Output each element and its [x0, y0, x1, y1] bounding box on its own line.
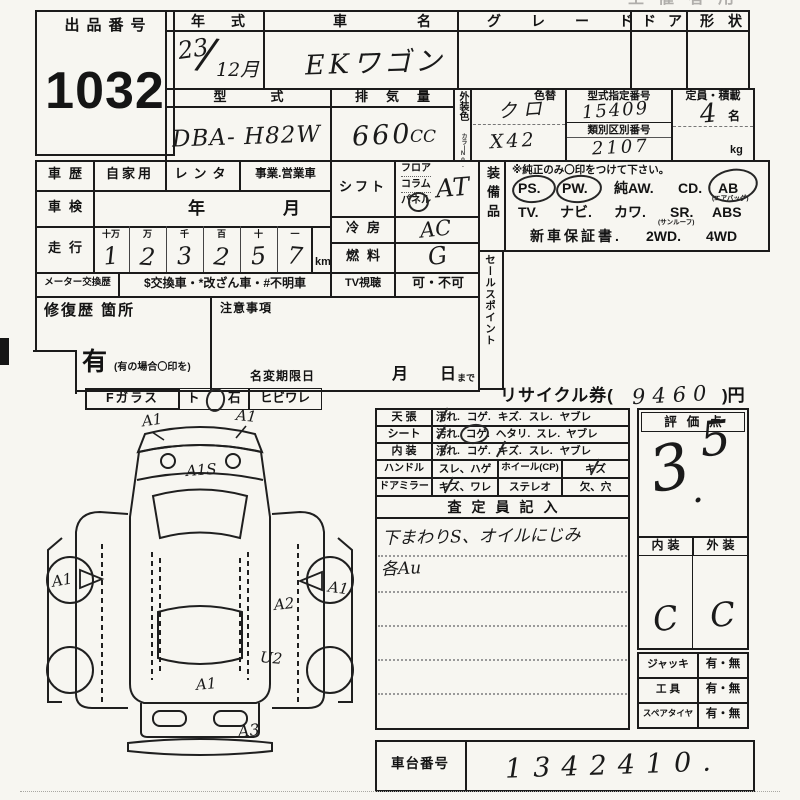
equipment-kawa: カワ.	[614, 204, 646, 220]
notes-rule-line	[378, 555, 627, 557]
equipment-abs: ABS	[712, 204, 742, 220]
sales-point-label: セールスポイント	[481, 254, 499, 346]
class-number-value: 2107	[591, 137, 650, 161]
rename-deadline-label: 名変期限日	[250, 370, 315, 384]
mileage-digit-5: 5	[239, 242, 278, 272]
mileage-digit-6: 7	[276, 241, 314, 272]
car-damage-diagram: A1 A1 A1S A1 A1 A2 U2 A1 A3	[40, 412, 360, 762]
equipment-warranty: 新車保証書.	[530, 228, 622, 244]
damage-mark: A1	[235, 407, 257, 426]
class-number-label: 類別区別番号	[567, 122, 671, 138]
history-label: 車歴	[35, 167, 95, 182]
spare-label: スペアタイヤ	[637, 709, 699, 719]
jack-label: ジャッキ	[637, 658, 699, 670]
mileage-col-1k: 千	[166, 229, 203, 239]
tool-label: 工 具	[637, 683, 699, 695]
fglass-opt-ishi: 石	[228, 391, 241, 405]
payload-unit: kg	[730, 144, 743, 157]
condition-item: ヤブレ	[560, 445, 592, 457]
condition-item: スレ.	[536, 428, 560, 440]
inspection-year-label: 年	[188, 199, 205, 219]
interior-trim-label: 内 装	[375, 445, 433, 458]
equipment-4wd: 4WD	[706, 228, 737, 244]
damage-mark: A1S	[185, 461, 217, 480]
ac-value: AC	[419, 215, 453, 242]
model-label: 型式	[165, 90, 332, 105]
lot-number-value: 1032	[35, 62, 175, 122]
shift-label: シフト	[330, 180, 396, 195]
jack-value: 有・無	[697, 658, 749, 671]
mileage-digit-1: 1	[92, 241, 130, 272]
color-value: クロ	[497, 98, 548, 123]
wheel-label: ホイール(CP)	[497, 463, 563, 474]
tool-value: 有・無	[697, 683, 749, 696]
seat-label: シート	[375, 428, 433, 441]
damage-mark: A1	[195, 675, 217, 694]
condition-item: コゲ.	[467, 445, 491, 457]
inspector-note-2: 各Au	[381, 559, 422, 580]
condition-item: ヤブレ	[560, 411, 592, 423]
history-private: 自家用	[93, 167, 167, 182]
mileage-col-100: 百	[203, 229, 240, 239]
shape-label: 形状	[686, 13, 750, 29]
displacement-label: 排気量	[330, 90, 455, 105]
mileage-col-100k: 十万	[93, 229, 129, 239]
equipment-label: 装備品	[482, 166, 502, 223]
capacity-unit: 名	[728, 110, 740, 124]
score-dot: .	[692, 468, 704, 512]
damage-mark: A2	[273, 595, 295, 614]
mileage-digit-3: 3	[165, 242, 203, 271]
mileage-digit-2: 2	[128, 243, 167, 273]
scan-artifact-line	[20, 791, 780, 792]
stereo-items: 欠、穴	[561, 481, 630, 493]
ceiling-label: 天 張	[375, 411, 433, 424]
mileage-col-1: 一	[277, 229, 313, 239]
history-rental: レンタ	[165, 167, 241, 182]
fuel-value: G	[426, 242, 449, 272]
ac-label: 冷房	[330, 221, 396, 236]
lot-number-label: 出品番号	[35, 17, 175, 34]
meter-label: メーター交換歴	[35, 278, 120, 289]
year-month-value: 12月	[216, 60, 259, 82]
spare-value: 有・無	[697, 708, 749, 721]
grade-label: グレード	[457, 13, 632, 29]
model-value: DBA- H82W	[172, 121, 322, 153]
chassis-label: 車台番号	[375, 756, 465, 772]
tv-options: 可・不可	[396, 276, 480, 291]
notes-rule-line	[378, 625, 627, 627]
meter-options: $交換車・*改ざん車・#不明車	[118, 277, 332, 291]
condition-item: コゲ.	[467, 411, 491, 423]
sheet-corner-title: 主催者用	[628, 0, 748, 8]
damage-mark: A1	[141, 411, 164, 431]
equipment-sr: SR.	[670, 204, 693, 220]
fuel-label: 燃料	[330, 249, 396, 264]
shift-value: AT	[435, 173, 471, 205]
year-label: 年式	[165, 13, 265, 29]
equipment-navi: ナビ.	[560, 204, 592, 220]
notice-label: 注意事項	[220, 302, 272, 316]
repair-has-note: (有の場合〇印を)	[114, 362, 191, 374]
repair-has-label: 有	[82, 348, 107, 377]
recycle-label: リサイクル券(	[500, 386, 614, 406]
damage-mark: A1	[327, 579, 350, 599]
equipment-sr-note: (サンルーフ)	[658, 219, 694, 226]
damage-mark: U2	[259, 649, 283, 668]
exterior-grade: C	[708, 595, 737, 635]
color-cell-divider	[473, 124, 565, 125]
fglass-opt-to: ト	[187, 391, 200, 405]
color-code-value: X42	[489, 130, 537, 154]
displacement-value: 660	[351, 118, 413, 152]
stereo-label: ステレオ	[497, 481, 563, 493]
damage-mark: A1	[51, 570, 74, 591]
interior-grade: C	[650, 598, 680, 639]
condition-item: ヤブレ	[566, 428, 598, 440]
equipment-2wd: 2WD.	[646, 228, 681, 244]
interior-options: 汚れ.コゲ.キズ.スレ.ヤブレ	[436, 445, 591, 457]
inspector-header: 査定員記入	[375, 499, 630, 515]
notes-rule-line	[378, 693, 627, 695]
mileage-label: 走行	[35, 241, 95, 256]
handle-label: ハンドル	[375, 463, 433, 475]
fglass-label: Fガラス	[85, 391, 180, 405]
notes-rule-line	[378, 659, 627, 661]
recycle-value: 9460	[631, 381, 714, 409]
handle-items: スレ、ハゲ	[431, 463, 499, 475]
name-label: 車名	[263, 13, 459, 29]
repair-label: 修復歴 箇所	[44, 302, 135, 319]
mirror-items: キズ、ワレ	[431, 481, 499, 493]
equipment-tv: TV.	[518, 204, 539, 220]
rename-made-label: まで	[457, 373, 475, 383]
inspector-note-1: 下まわりS、オイルにじみ	[382, 526, 581, 549]
capacity-cell-divider	[673, 126, 753, 127]
chassis-divider	[465, 740, 467, 792]
name-value: EKワゴン	[305, 46, 447, 82]
condition-item: ヘタリ.	[496, 428, 530, 440]
mirror-label: ドアミラー	[375, 481, 433, 493]
mileage-unit: km	[315, 256, 331, 269]
interior-label: 内装	[637, 539, 694, 553]
tv-label: TV視聴	[330, 277, 396, 290]
mileage-col-10k: 万	[129, 229, 166, 239]
rename-day-label: 日	[440, 366, 456, 384]
history-commercial: 事業.営業車	[239, 168, 332, 181]
condition-item: キズ.	[498, 411, 522, 423]
rename-month-label: 月	[392, 366, 408, 384]
inspector-notes-box	[375, 517, 630, 730]
door-label: ドア	[630, 13, 688, 29]
scan-artifact-blob	[0, 338, 9, 365]
score-dec: 5	[697, 411, 733, 469]
exterior-label: 外装	[692, 539, 749, 553]
equipment-aw: 純AW.	[614, 180, 654, 196]
inspection-month-label: 月	[283, 199, 300, 219]
recycle-suffix: )円	[722, 386, 745, 406]
exterior-color-label: 外装色	[455, 91, 470, 121]
mileage-col-10: 十	[240, 229, 277, 239]
displacement-unit: CC	[410, 128, 436, 148]
fglass-crack-label: ヒビワレ	[248, 391, 322, 405]
shift-option-floor: フロア	[401, 163, 431, 177]
damage-mark: A3	[237, 721, 261, 742]
condition-item: スレ.	[529, 411, 553, 423]
condition-item: スレ.	[529, 445, 553, 457]
auction-sheet: 主催者用 出品番号 1032 年式 23 / 12月 車名 EKワゴン グレード…	[0, 0, 800, 800]
notes-rule-line	[378, 591, 627, 593]
mileage-digit-4: 2	[202, 242, 242, 273]
ceiling-options: 汚れ.コゲ.キズ.スレ.ヤブレ	[436, 411, 591, 423]
equipment-cd: CD.	[678, 180, 702, 196]
inspection-label: 車検	[35, 200, 95, 215]
repair-notch	[33, 350, 77, 394]
shift-option-column: コラム	[401, 179, 431, 193]
